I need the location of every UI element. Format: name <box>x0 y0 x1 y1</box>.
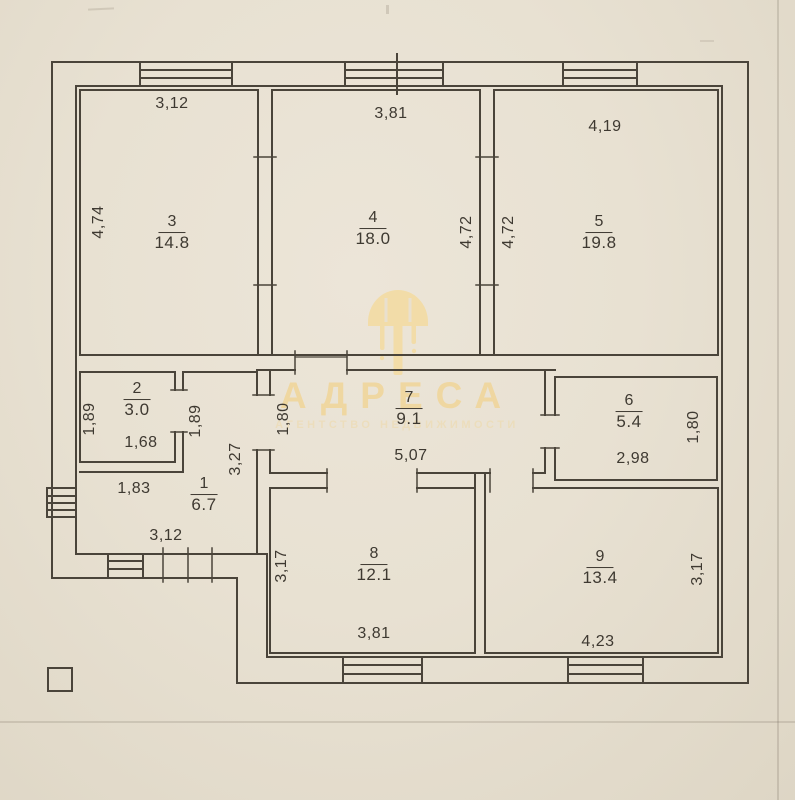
room-number: 1 <box>191 475 218 495</box>
dimension-label: 2,98 <box>616 450 649 468</box>
dimension-label: 4,23 <box>581 633 614 651</box>
room-number: 4 <box>360 209 387 229</box>
dimension-label: 3,81 <box>357 625 390 643</box>
dimension-label: 1,68 <box>124 434 157 452</box>
room-number: 9 <box>587 548 614 568</box>
room-area: 13.4 <box>582 568 617 588</box>
dimension-label: 3,17 <box>273 549 291 582</box>
dimension-label: 3,27 <box>227 442 245 475</box>
room-number: 5 <box>586 213 613 233</box>
room-number: 6 <box>616 392 643 412</box>
dimension-label: 4,72 <box>500 215 518 248</box>
dimension-label: 4,74 <box>90 205 108 238</box>
dimension-label: 5,07 <box>394 447 427 465</box>
dimension-label: 1,83 <box>117 480 150 498</box>
room-label: 519.8 <box>581 213 616 253</box>
room-label: 314.8 <box>154 213 189 253</box>
dimension-label: 1,89 <box>81 402 99 435</box>
room-number: 7 <box>396 389 423 409</box>
dimension-label: 3,17 <box>689 552 707 585</box>
room-number: 2 <box>124 380 151 400</box>
dimension-label: 4,19 <box>588 118 621 136</box>
room-area: 5.4 <box>616 412 643 432</box>
room-number: 8 <box>361 545 388 565</box>
room-label: 23.0 <box>124 380 151 420</box>
room-area: 6.7 <box>191 495 218 515</box>
room-label: 79.1 <box>396 389 423 429</box>
dimension-label: 3,81 <box>374 105 407 123</box>
dimension-label: 4,72 <box>458 215 476 248</box>
room-area: 19.8 <box>581 233 616 253</box>
dimension-label: 1,80 <box>685 410 703 443</box>
scanned-floor-plan-page: АДРЕСА АГЕНТСТВО НЕДВИЖИМОСТИ <box>0 0 795 800</box>
room-number: 3 <box>159 213 186 233</box>
dimension-label: 1,80 <box>275 402 293 435</box>
dimension-label: 3,12 <box>149 527 182 545</box>
room-area: 12.1 <box>356 565 391 585</box>
room-labels-layer: 314.8418.0519.823.079.165.416.7812.1913.… <box>0 0 795 800</box>
dimension-label: 1,89 <box>187 404 205 437</box>
room-area: 3.0 <box>124 400 151 420</box>
room-area: 14.8 <box>154 233 189 253</box>
room-label: 418.0 <box>355 209 390 249</box>
room-area: 9.1 <box>396 409 423 429</box>
room-label: 65.4 <box>616 392 643 432</box>
room-label: 16.7 <box>191 475 218 515</box>
room-label: 913.4 <box>582 548 617 588</box>
room-area: 18.0 <box>355 229 390 249</box>
room-label: 812.1 <box>356 545 391 585</box>
dimension-label: 3,12 <box>155 95 188 113</box>
